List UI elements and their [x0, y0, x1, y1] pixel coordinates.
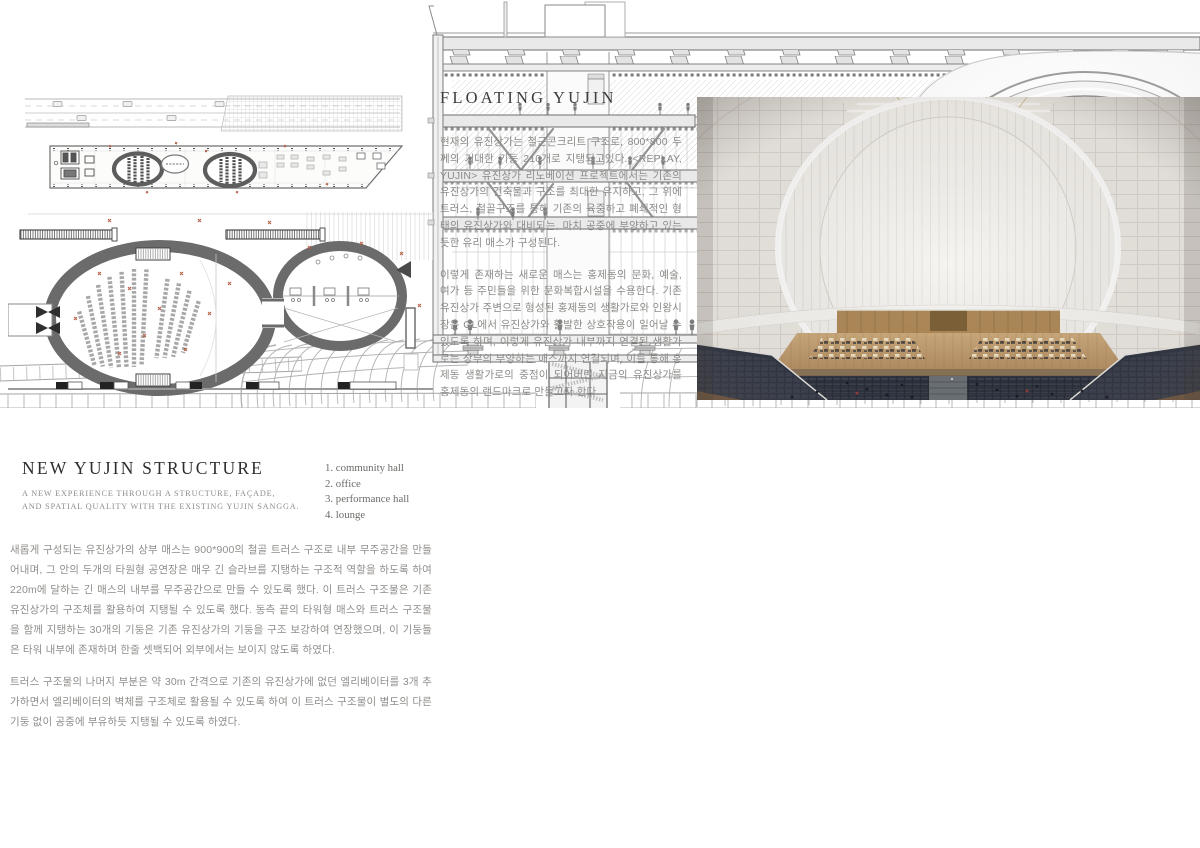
floating-yujin-section: FLOATING YUJIN 현재의 유진상가는 철근콘크리트 구조로, 800… [440, 88, 682, 401]
performance-hall-plan-1 [114, 154, 162, 185]
section-title: NEW YUJIN STRUCTURE [22, 458, 312, 479]
legend-item-community-hall: 1. community hall [325, 461, 435, 477]
lounge-plan-small [162, 155, 189, 173]
photo-vignette [697, 97, 1200, 400]
rooftop-box [429, 2, 625, 37]
legend-item-lounge: 4. lounge [325, 508, 435, 524]
site-plan-drawing [25, 93, 407, 211]
ring-junction-opening [262, 298, 284, 328]
floor-plan-drawing [8, 212, 433, 408]
structure-paragraph-2: 트러스 구조물의 나머지 부분은 약 30m 간격으로 기존의 유진상가에 없던… [10, 672, 432, 732]
hatch-grid-block [221, 96, 402, 131]
legend-item-performance-hall: 3. performance hall [325, 492, 435, 508]
performance-hall-plan-2 [205, 154, 255, 186]
escalator-bars [20, 228, 325, 241]
program-legend: 1. community hall 2. office 3. performan… [325, 461, 435, 523]
structure-paragraph-1-block: 새롭게 구성되는 유진상가의 상부 매스는 900*900의 철골 트러스 구조… [10, 540, 432, 660]
page-title: FLOATING YUJIN [440, 88, 682, 108]
entry-corridor [8, 304, 60, 336]
section-subtitle-line2: AND SPATIAL QUALITY WITH THE EXISTING YU… [22, 501, 312, 514]
floating-paragraph-1: 현재의 유진상가는 철근콘크리트 구조로, 800*800 두께의 거대한 기둥… [440, 134, 682, 252]
hall-photo [697, 97, 1200, 400]
structure-paragraph-1: 새롭게 구성되는 유진상가의 상부 매스는 900*900의 철골 트러스 구조… [10, 540, 432, 660]
legend-item-office: 2. office [325, 477, 435, 493]
floating-paragraph-2: 이렇게 존재하는 새로운 매스는 홍제동의 문화, 예술, 여가 등 주민들을 … [440, 267, 682, 401]
section-subtitle-line1: A NEW EXPERIENCE THROUGH A STRUCTURE, FA… [22, 488, 312, 501]
right-wall [404, 308, 418, 370]
structure-heading-block: NEW YUJIN STRUCTURE A NEW EXPERIENCE THR… [22, 458, 312, 513]
section-subtitle: A NEW EXPERIENCE THROUGH A STRUCTURE, FA… [22, 488, 312, 513]
structure-paragraph-2-block: 트러스 구조물의 나머지 부분은 약 30m 간격으로 기존의 유진상가에 없던… [10, 672, 432, 732]
